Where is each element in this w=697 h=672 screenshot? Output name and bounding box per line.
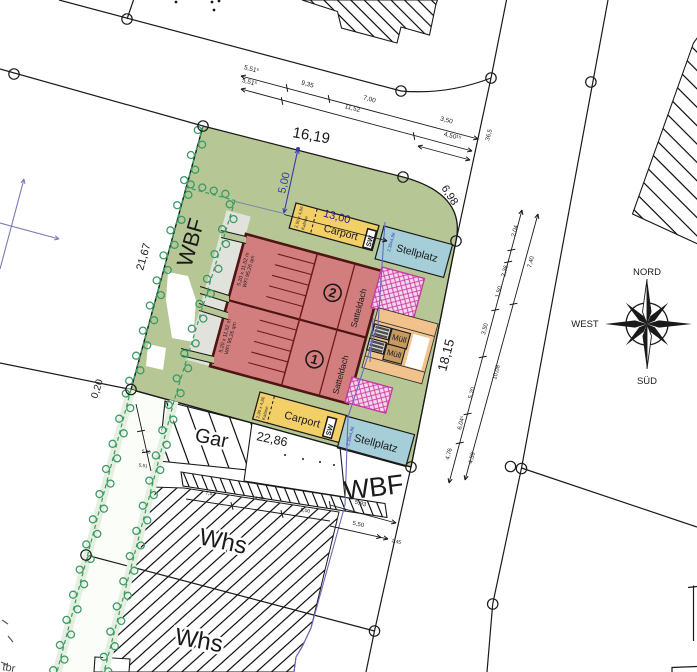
svg-text:WEST: WEST [571,319,599,330]
svg-text:tbr: tbr [1,661,16,672]
svg-text:NORD: NORD [633,267,661,278]
svg-text:SÜD: SÜD [637,376,657,387]
